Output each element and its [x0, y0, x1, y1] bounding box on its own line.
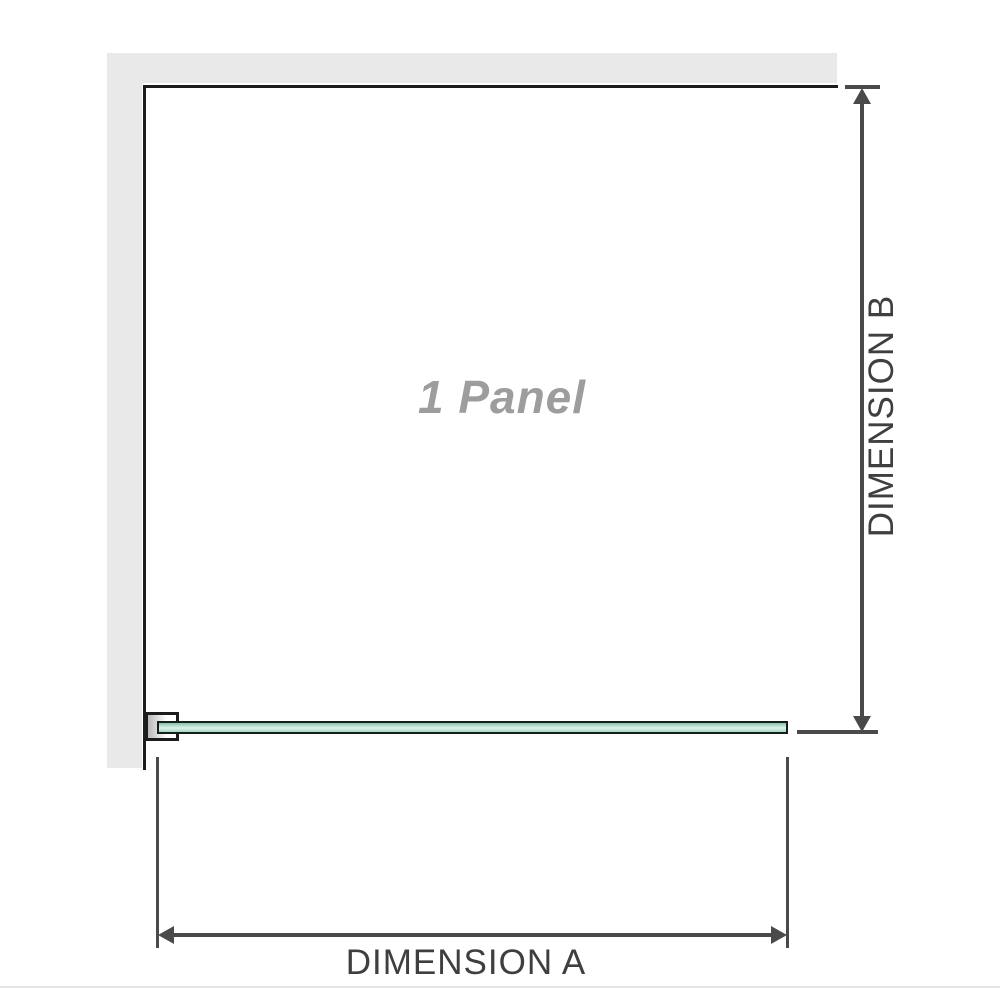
wall-top-bar	[108, 53, 837, 83]
glass-panel-bar	[157, 721, 788, 734]
panel-label: 1 Panel	[302, 370, 702, 424]
dimension-a-left-extension	[156, 757, 159, 948]
dimension-a-line	[172, 933, 773, 937]
arrow-left-icon	[158, 926, 174, 944]
panel-outline-left	[143, 85, 146, 770]
panel-outline-top	[143, 85, 838, 88]
baseline-divider	[0, 986, 1000, 988]
dimension-b-label: DIMENSION B	[863, 216, 901, 616]
wall-side-bar	[107, 53, 142, 768]
arrow-right-icon	[771, 926, 787, 944]
arrow-up-icon	[853, 88, 871, 104]
panel-dimension-diagram: 1 Panel DIMENSION B DIMENSION A	[0, 0, 1000, 1000]
arrow-down-icon	[853, 716, 871, 732]
dimension-a-right-extension	[786, 757, 789, 948]
dimension-a-label: DIMENSION A	[266, 944, 666, 982]
